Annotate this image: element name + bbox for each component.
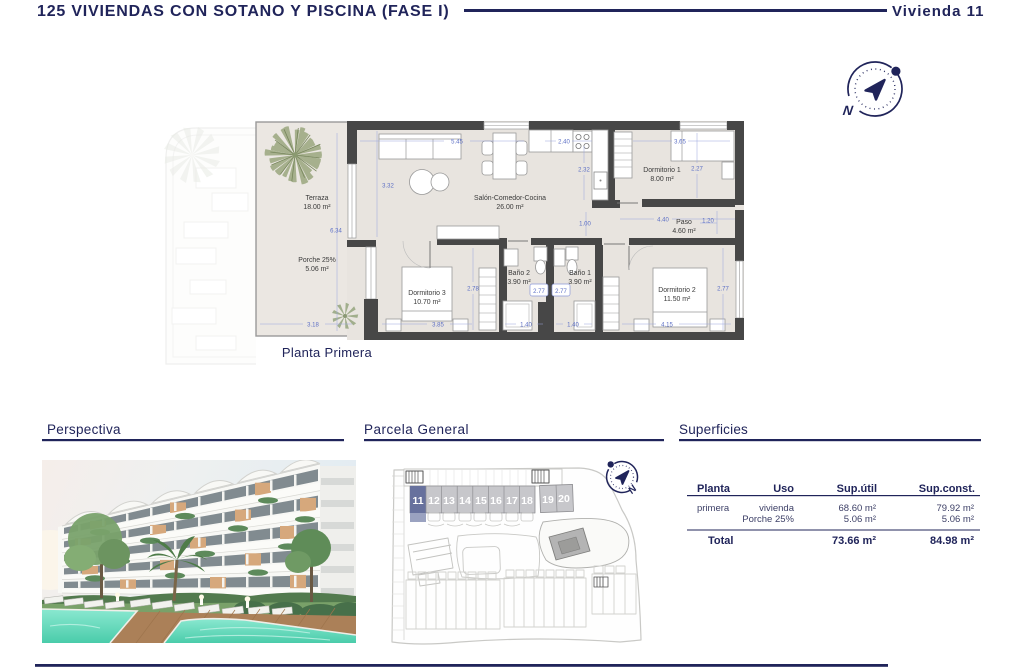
svg-text:15: 15: [475, 495, 487, 507]
svg-text:Superficies: Superficies: [679, 422, 748, 437]
svg-text:11: 11: [412, 495, 423, 507]
svg-text:Parcela General: Parcela General: [364, 422, 469, 437]
svg-text:5.06 m²: 5.06 m²: [942, 514, 974, 525]
svg-text:Baño 1: Baño 1: [569, 270, 591, 277]
svg-text:Planta: Planta: [697, 483, 731, 495]
svg-text:Terraza: Terraza: [306, 195, 329, 202]
svg-text:2.77: 2.77: [555, 289, 567, 295]
svg-text:3.32: 3.32: [382, 184, 394, 190]
svg-text:4.40: 4.40: [657, 218, 669, 224]
svg-text:1.20: 1.20: [702, 219, 714, 225]
svg-text:5.06 m²: 5.06 m²: [844, 514, 876, 525]
svg-text:26.00 m²: 26.00 m²: [496, 204, 524, 211]
svg-text:12: 12: [428, 495, 440, 507]
svg-text:68.60 m²: 68.60 m²: [839, 503, 877, 514]
svg-text:Sup.útil: Sup.útil: [837, 483, 877, 495]
svg-text:2.40: 2.40: [558, 140, 570, 146]
svg-text:Porche 25%: Porche 25%: [298, 257, 336, 264]
svg-text:Dormitorio 3: Dormitorio 3: [408, 290, 446, 297]
svg-text:18.00 m²: 18.00 m²: [303, 204, 331, 211]
svg-text:Dormitorio 1: Dormitorio 1: [643, 167, 681, 174]
svg-text:vivienda: vivienda: [759, 503, 795, 514]
svg-text:2.27: 2.27: [691, 167, 703, 173]
svg-text:Vivienda 11: Vivienda 11: [892, 3, 984, 20]
svg-text:10.70 m²: 10.70 m²: [413, 299, 441, 306]
svg-text:2.77: 2.77: [717, 287, 729, 293]
svg-text:20: 20: [558, 493, 570, 505]
svg-text:3.90 m²: 3.90 m²: [568, 279, 592, 286]
svg-text:1.00: 1.00: [579, 222, 591, 228]
svg-text:3.85: 3.85: [432, 323, 444, 329]
svg-text:Total: Total: [708, 535, 733, 547]
svg-text:Dormitorio 2: Dormitorio 2: [658, 287, 696, 294]
svg-text:1.40: 1.40: [567, 323, 579, 329]
svg-text:Paso: Paso: [676, 219, 692, 226]
svg-text:13: 13: [443, 495, 455, 507]
svg-text:11.50 m²: 11.50 m²: [664, 296, 691, 303]
svg-text:14: 14: [459, 495, 471, 507]
svg-text:1.40: 1.40: [520, 323, 532, 329]
svg-text:84.98 m²: 84.98 m²: [930, 535, 974, 547]
svg-text:18: 18: [521, 495, 533, 507]
svg-text:19: 19: [542, 494, 554, 506]
svg-text:4.60 m²: 4.60 m²: [672, 228, 696, 235]
svg-text:Baño 2: Baño 2: [508, 270, 530, 277]
svg-text:2.77: 2.77: [533, 289, 545, 295]
svg-text:Uso: Uso: [773, 483, 794, 495]
svg-text:2.78: 2.78: [467, 287, 479, 293]
svg-text:Sup.const.: Sup.const.: [919, 483, 975, 495]
svg-text:79.92 m²: 79.92 m²: [937, 503, 975, 514]
svg-text:3.90 m²: 3.90 m²: [507, 279, 531, 286]
svg-text:73.66 m²: 73.66 m²: [832, 535, 876, 547]
svg-text:16: 16: [490, 495, 502, 507]
svg-text:Porche 25%: Porche 25%: [742, 514, 794, 525]
svg-text:primera: primera: [697, 503, 730, 514]
svg-text:3.18: 3.18: [307, 323, 319, 329]
svg-text:Perspectiva: Perspectiva: [47, 422, 121, 437]
svg-text:2.32: 2.32: [578, 168, 590, 174]
svg-text:8.00 m²: 8.00 m²: [650, 176, 674, 183]
svg-text:Salón-Comedor-Cocina: Salón-Comedor-Cocina: [474, 195, 546, 202]
svg-text:6.34: 6.34: [330, 229, 342, 235]
svg-text:5.45: 5.45: [451, 140, 463, 146]
svg-text:4.15: 4.15: [661, 323, 673, 329]
svg-text:Planta Primera: Planta Primera: [282, 345, 373, 360]
svg-text:125 VIVIENDAS CON SOTANO Y PIS: 125 VIVIENDAS CON SOTANO Y PISCINA (FASE…: [37, 3, 450, 20]
svg-text:5.06 m²: 5.06 m²: [305, 266, 329, 273]
svg-text:3.65: 3.65: [674, 140, 686, 146]
svg-text:17: 17: [506, 495, 518, 507]
